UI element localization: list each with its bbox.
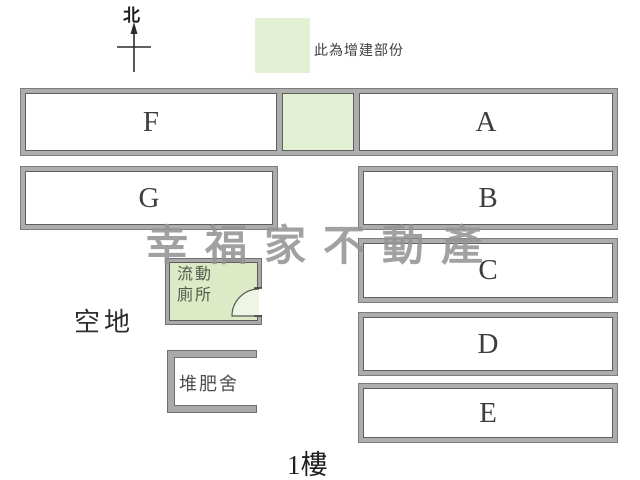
unit-d: D: [363, 317, 613, 371]
north-arrow-icon: [110, 20, 160, 76]
unit-d-box: D: [358, 312, 618, 376]
compass: 北: [110, 0, 160, 78]
unit-a: A: [359, 93, 613, 151]
extension-legend-label: 此為增建部份: [314, 40, 404, 60]
unit-e: E: [363, 388, 613, 438]
floor-label: 1樓: [287, 443, 328, 480]
extension-legend-swatch: [255, 18, 310, 73]
watermark-text: 幸福家不動產: [146, 212, 500, 273]
compost-shed-label: 堆肥舍: [179, 370, 239, 396]
building-row-top: F A: [20, 88, 618, 156]
portable-toilet-label-line2: 廁所: [177, 285, 213, 306]
extension-cell: [282, 93, 354, 151]
unit-e-box: E: [358, 383, 618, 443]
door-swing-icon: [224, 286, 262, 320]
compost-shed: 堆肥舍: [167, 350, 257, 413]
unit-f: F: [25, 93, 277, 151]
open-area-label: 空地: [74, 302, 134, 339]
floor-plan: 北 此為增建部份 F A G B C D E 空地 流動 廁所: [0, 0, 640, 480]
